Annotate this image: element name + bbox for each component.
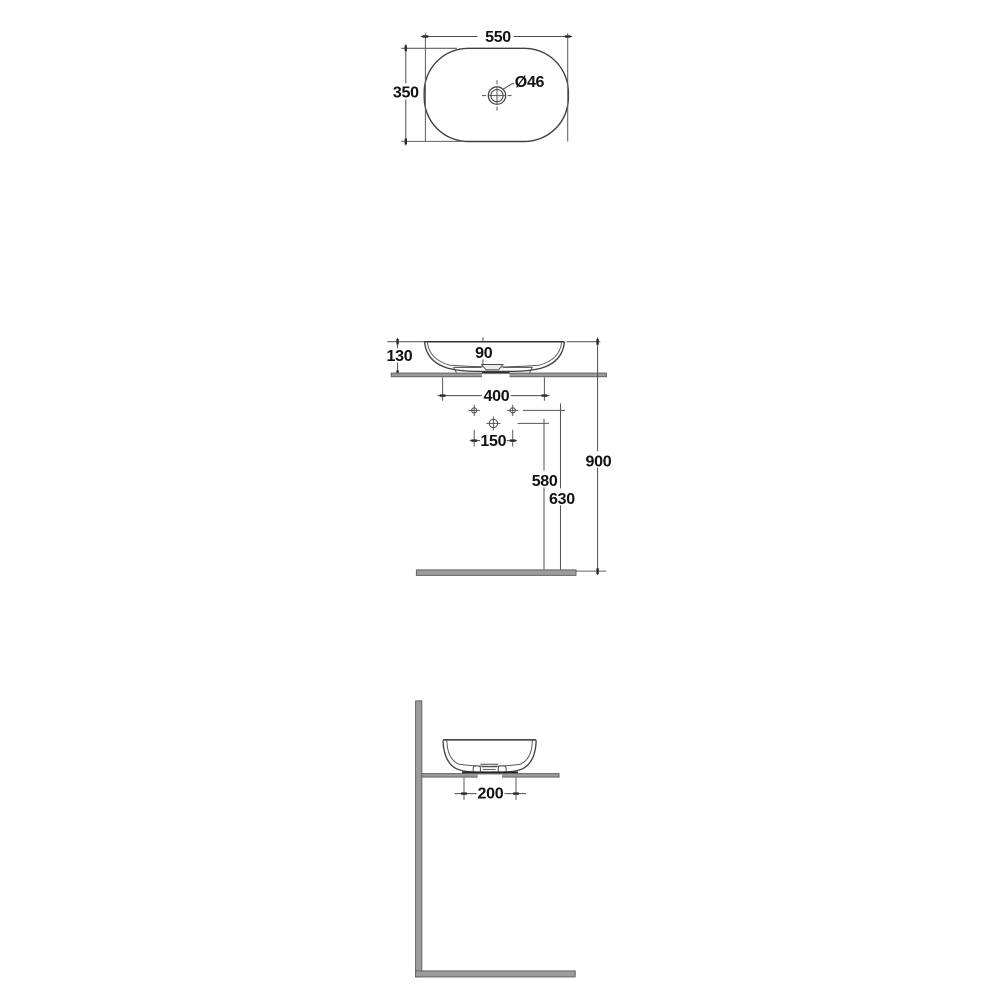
svg-text:900: 900	[586, 453, 612, 470]
svg-text:Ø46: Ø46	[515, 74, 545, 91]
svg-text:630: 630	[549, 491, 575, 508]
svg-text:580: 580	[532, 473, 558, 490]
svg-text:200: 200	[478, 786, 504, 803]
svg-text:550: 550	[485, 29, 511, 46]
svg-text:90: 90	[475, 345, 493, 362]
svg-text:150: 150	[480, 433, 506, 450]
svg-text:130: 130	[387, 348, 413, 365]
svg-text:350: 350	[393, 85, 419, 102]
svg-text:400: 400	[484, 388, 510, 405]
